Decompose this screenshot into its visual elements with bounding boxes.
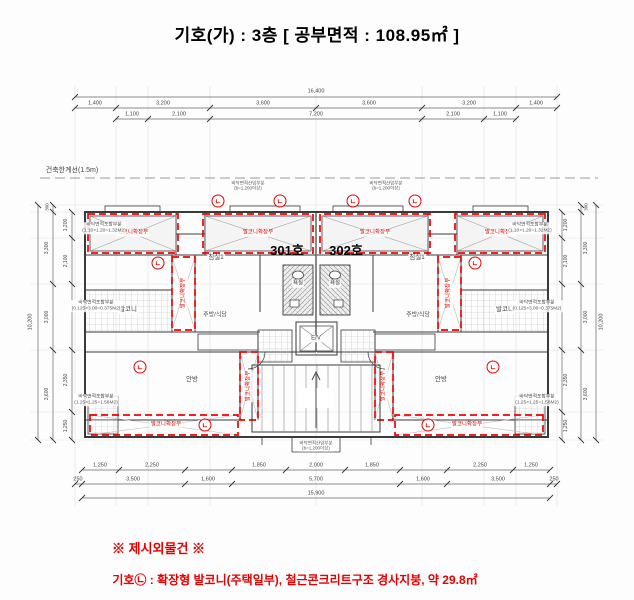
unit-301-linework — [85, 206, 316, 435]
floor-plan-drawing — [0, 0, 634, 600]
exclusions-note: 기호㉡ : 확장형 발코니(주택일부), 철근콘크리트구조 경사지붕, 약 29… — [0, 571, 590, 588]
unit-302-linework — [317, 206, 548, 435]
floor-plan-page: 기호(가) : 3층 [ 공부면적 : 108.95㎡ ] — [0, 0, 634, 600]
exclusions-heading: ※ 제시외물건 ※ — [112, 538, 205, 557]
